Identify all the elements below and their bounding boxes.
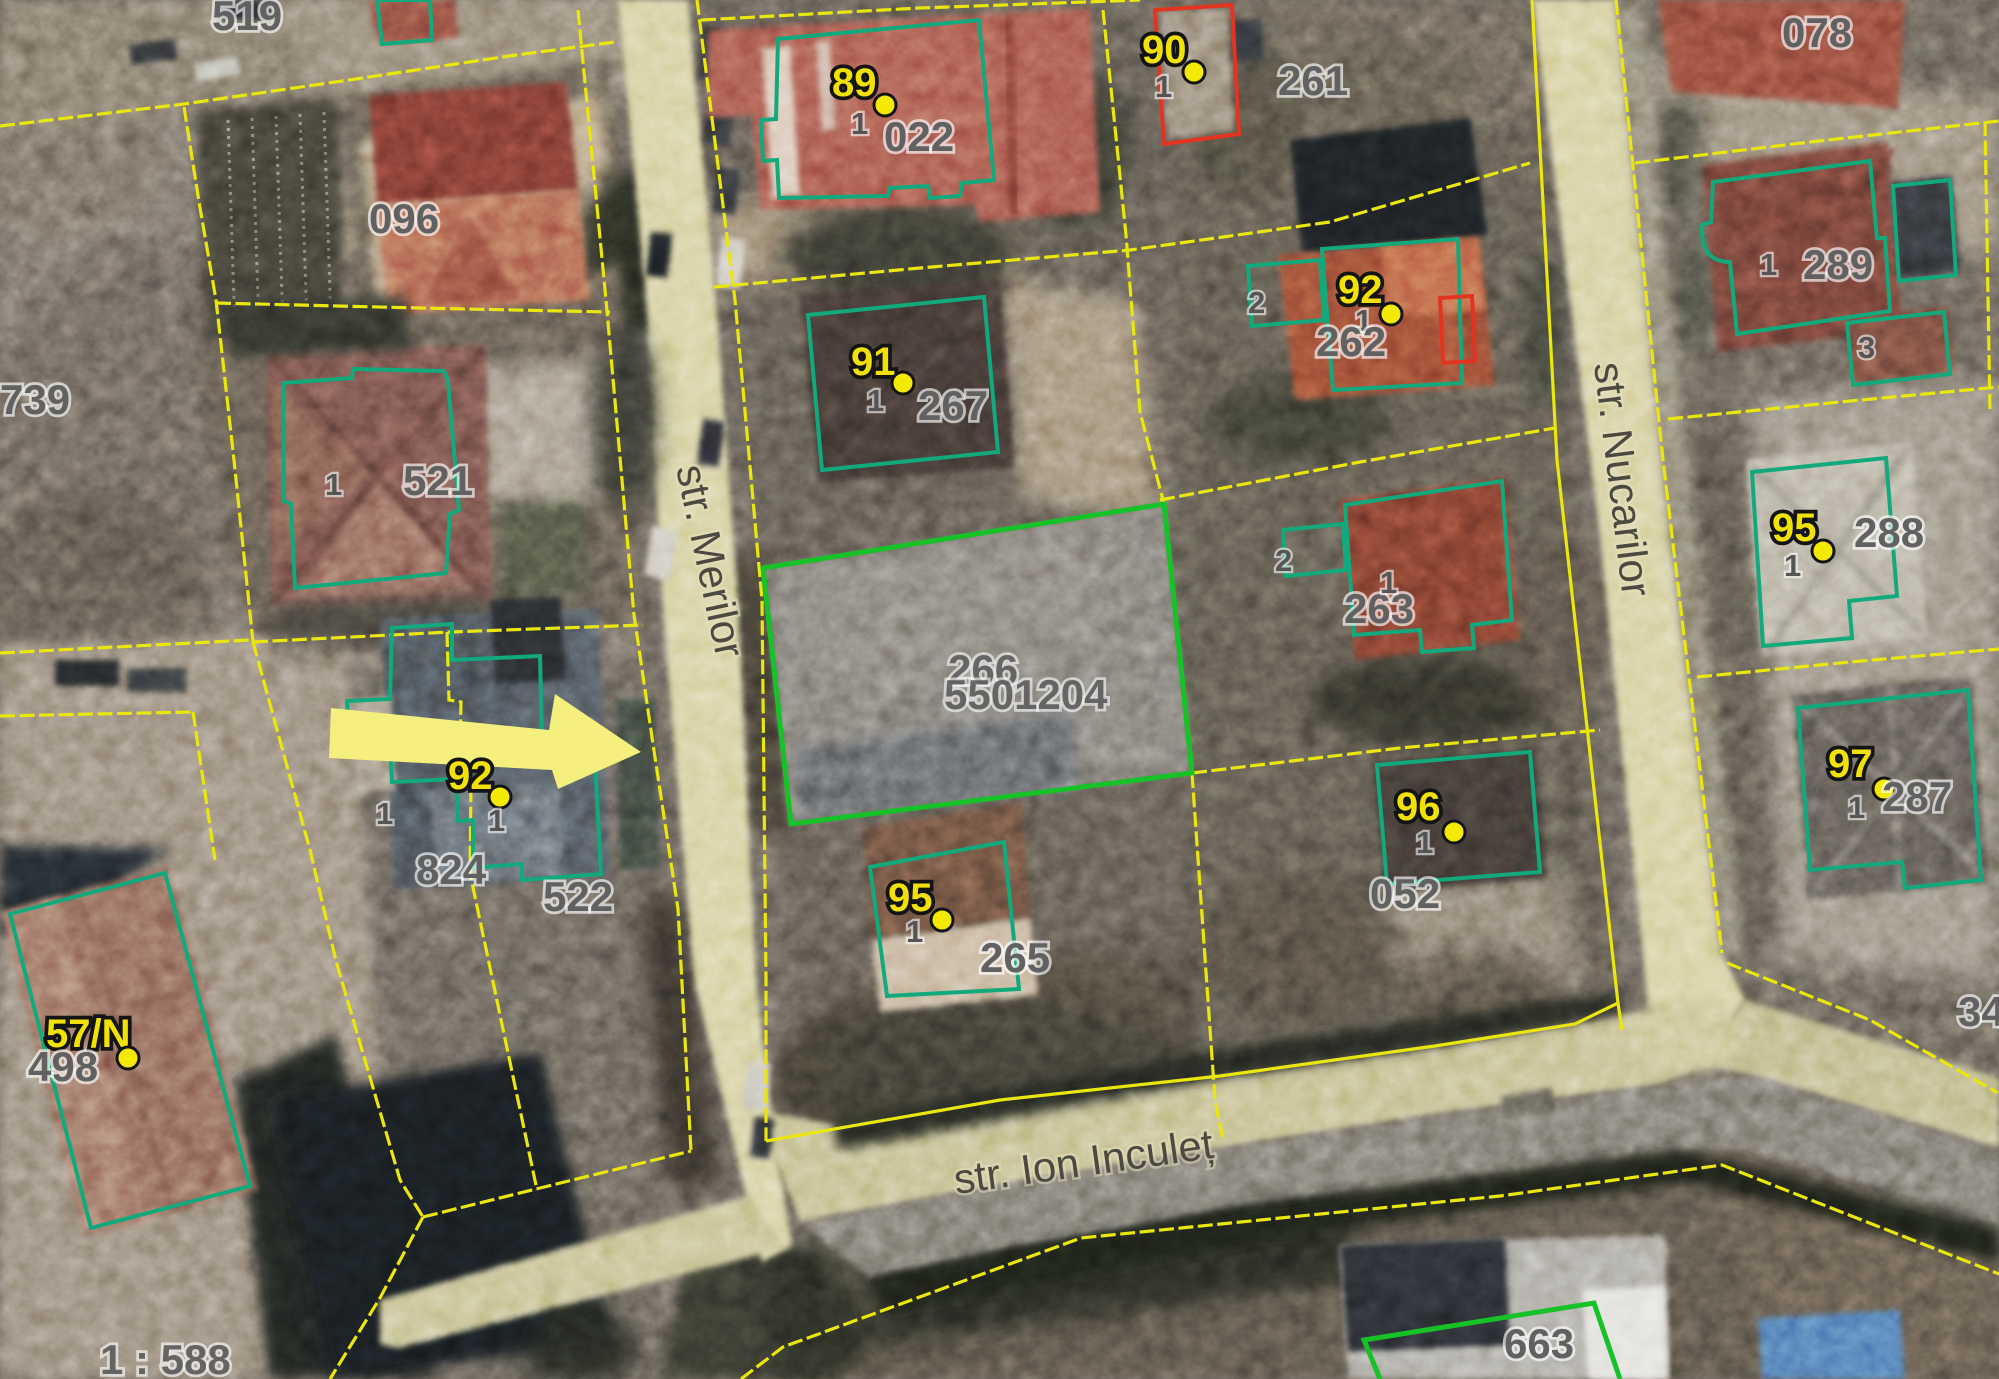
svg-text:288: 288 (1854, 509, 1924, 556)
svg-text:287: 287 (1882, 773, 1952, 820)
svg-text:90: 90 (1142, 28, 1187, 72)
svg-text:262: 262 (1316, 318, 1386, 365)
svg-text:1: 1 (325, 467, 342, 502)
svg-text:1: 1 (851, 106, 868, 141)
svg-text:078: 078 (1782, 9, 1852, 56)
svg-text:261: 261 (1278, 57, 1348, 104)
svg-text:1: 1 (1155, 69, 1172, 104)
svg-text:91: 91 (851, 340, 896, 384)
svg-text:96: 96 (1396, 785, 1441, 829)
svg-text:1 : 588: 1 : 588 (100, 1336, 231, 1379)
svg-text:1: 1 (376, 796, 393, 831)
svg-text:1: 1 (1848, 790, 1865, 825)
svg-text:1: 1 (1380, 565, 1397, 600)
svg-text:522: 522 (543, 873, 613, 920)
svg-text:052: 052 (1370, 870, 1440, 917)
svg-text:519: 519 (212, 0, 282, 39)
svg-text:3: 3 (1858, 330, 1875, 365)
svg-text:289: 289 (1803, 241, 1873, 288)
svg-text:34: 34 (1958, 988, 1999, 1035)
svg-text:1: 1 (1784, 548, 1801, 583)
svg-text:498: 498 (28, 1043, 98, 1090)
svg-text:1: 1 (488, 803, 505, 838)
svg-text:739: 739 (0, 376, 70, 423)
svg-text:663: 663 (1504, 1320, 1574, 1367)
svg-text:97: 97 (1828, 742, 1873, 786)
svg-text:1: 1 (867, 383, 884, 418)
svg-text:95: 95 (1772, 506, 1817, 550)
svg-text:2: 2 (1248, 285, 1265, 320)
svg-text:5501204: 5501204 (944, 671, 1108, 718)
svg-text:1: 1 (906, 914, 923, 949)
svg-text:265: 265 (980, 934, 1050, 981)
svg-text:096: 096 (369, 195, 439, 242)
svg-text:1: 1 (1760, 247, 1777, 282)
svg-text:022: 022 (884, 113, 954, 160)
svg-text:92: 92 (448, 754, 493, 798)
svg-text:824: 824 (416, 846, 487, 893)
svg-text:267: 267 (918, 382, 988, 429)
svg-text:521: 521 (403, 457, 473, 504)
svg-text:2: 2 (1275, 543, 1292, 578)
svg-text:89: 89 (832, 61, 877, 105)
svg-text:1: 1 (1416, 825, 1433, 860)
